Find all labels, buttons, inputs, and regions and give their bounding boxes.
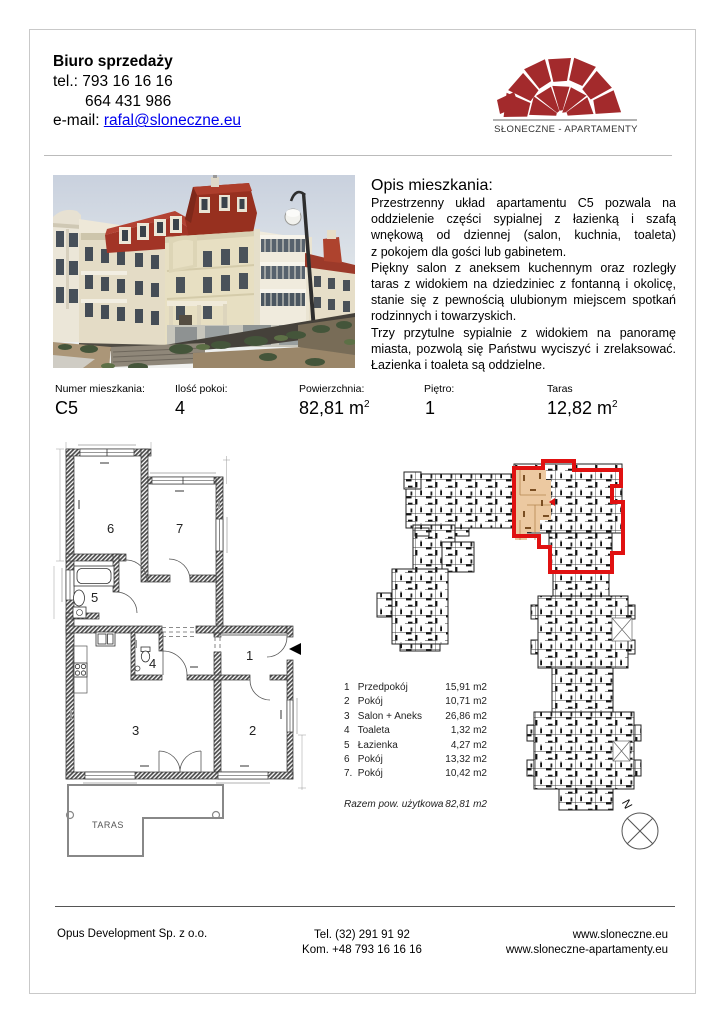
svg-text:6: 6 [107, 521, 114, 536]
svg-text:1: 1 [246, 648, 253, 663]
svg-text:2: 2 [249, 723, 256, 738]
svg-text:N: N [619, 797, 635, 811]
svg-text:7: 7 [176, 521, 183, 536]
svg-text:5: 5 [91, 590, 98, 605]
svg-text:3: 3 [132, 723, 139, 738]
svg-text:4: 4 [149, 656, 156, 671]
svg-text:TARAS: TARAS [92, 820, 124, 830]
